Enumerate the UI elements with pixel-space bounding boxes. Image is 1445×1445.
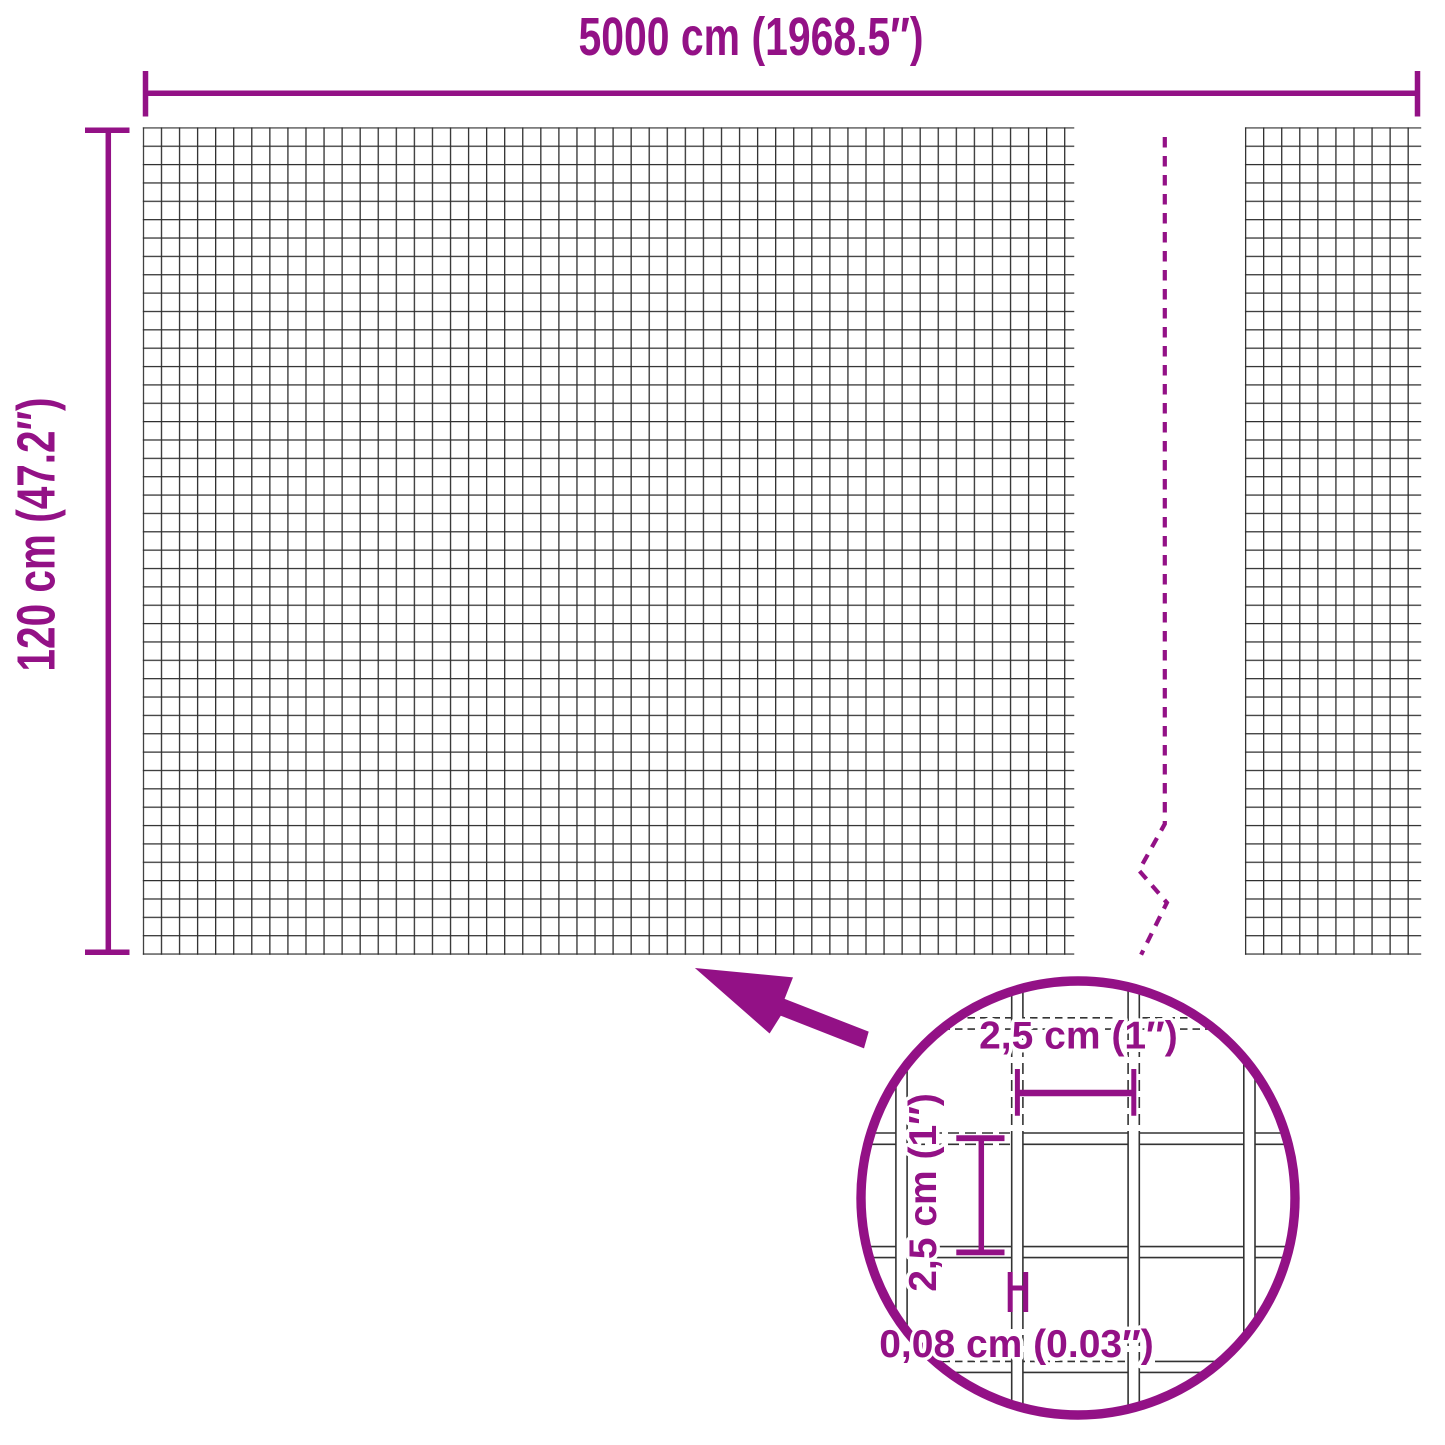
svg-text:5000 cm (1968.5″): 5000 cm (1968.5″) xyxy=(579,7,924,67)
svg-text:2,5 cm (1″): 2,5 cm (1″) xyxy=(979,1015,1178,1058)
svg-text:2,5 cm (1″): 2,5 cm (1″) xyxy=(902,1093,945,1292)
svg-text:120 cm (47.2″): 120 cm (47.2″) xyxy=(7,398,67,672)
svg-text:0,08 cm (0.03″): 0,08 cm (0.03″) xyxy=(879,1323,1154,1366)
